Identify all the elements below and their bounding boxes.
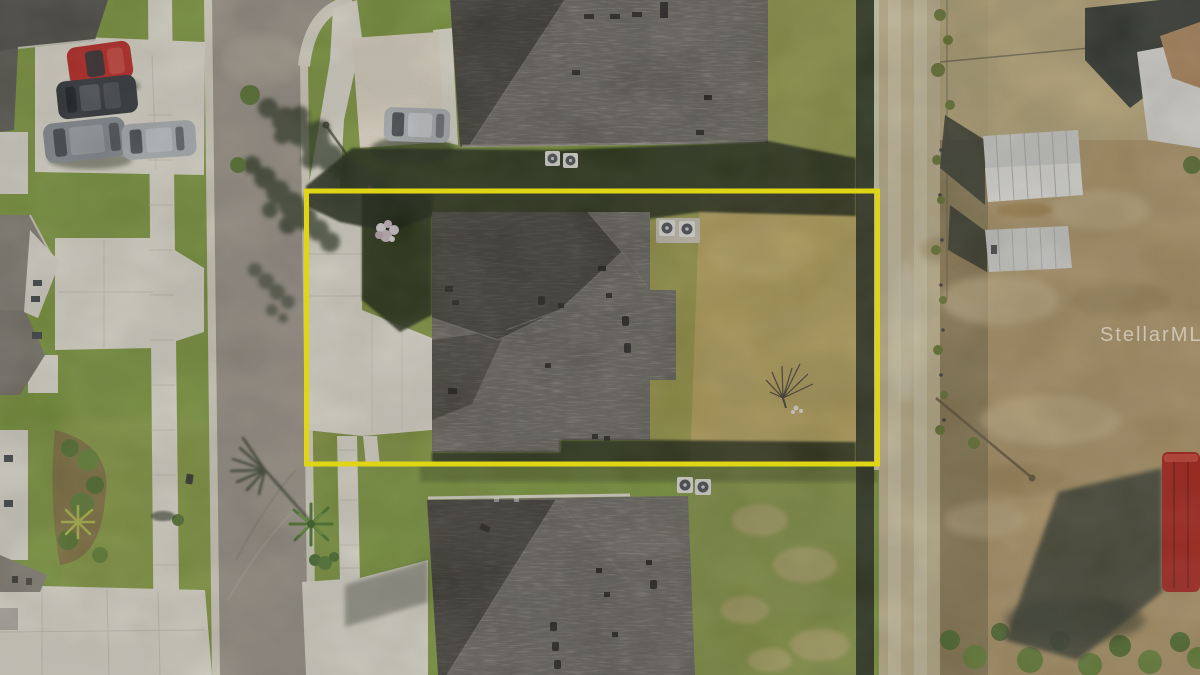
aerial-photo: StellarMLS (0, 0, 1200, 675)
watermark: StellarMLS (1100, 324, 1200, 347)
photo-grain (0, 0, 1200, 675)
aerial-photo-canvas (0, 0, 1200, 675)
